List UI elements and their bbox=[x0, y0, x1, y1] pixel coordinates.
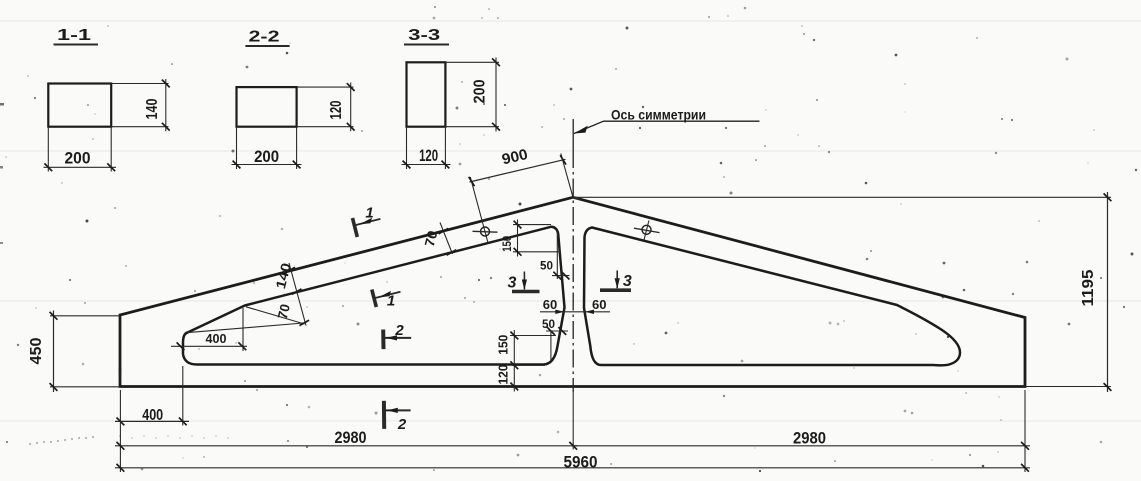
svg-text:150: 150 bbox=[500, 236, 514, 252]
svg-text:400: 400 bbox=[142, 407, 163, 424]
svg-text:200: 200 bbox=[65, 150, 91, 168]
svg-text:60: 60 bbox=[543, 298, 558, 312]
svg-text:1: 1 bbox=[365, 205, 373, 222]
svg-text:150: 150 bbox=[497, 335, 511, 355]
svg-text:2980: 2980 bbox=[335, 429, 367, 447]
svg-text:2: 2 bbox=[397, 416, 407, 433]
svg-text:2-2: 2-2 bbox=[249, 29, 280, 46]
svg-text:3-3: 3-3 bbox=[408, 27, 440, 44]
svg-text:3: 3 bbox=[508, 275, 517, 292]
svg-text:Ось симметрии: Ось симметрии bbox=[611, 108, 706, 123]
svg-text:60: 60 bbox=[592, 298, 607, 312]
svg-text:120: 120 bbox=[328, 100, 345, 119]
svg-text:5960: 5960 bbox=[564, 454, 598, 472]
svg-text:1195: 1195 bbox=[1080, 269, 1097, 306]
svg-text:120: 120 bbox=[419, 147, 438, 165]
svg-text:450: 450 bbox=[28, 337, 45, 364]
svg-text:200: 200 bbox=[471, 79, 488, 103]
svg-text:3: 3 bbox=[623, 273, 632, 290]
svg-text:2980: 2980 bbox=[793, 430, 826, 448]
svg-text:1-1: 1-1 bbox=[57, 27, 91, 44]
svg-text:200: 200 bbox=[254, 148, 279, 166]
svg-text:2: 2 bbox=[394, 322, 404, 339]
svg-text:50: 50 bbox=[540, 259, 553, 273]
svg-text:1: 1 bbox=[387, 293, 395, 310]
svg-text:140: 140 bbox=[144, 98, 161, 119]
svg-text:50: 50 bbox=[542, 317, 555, 331]
svg-text:120: 120 bbox=[497, 364, 511, 384]
svg-text:400: 400 bbox=[206, 331, 227, 346]
